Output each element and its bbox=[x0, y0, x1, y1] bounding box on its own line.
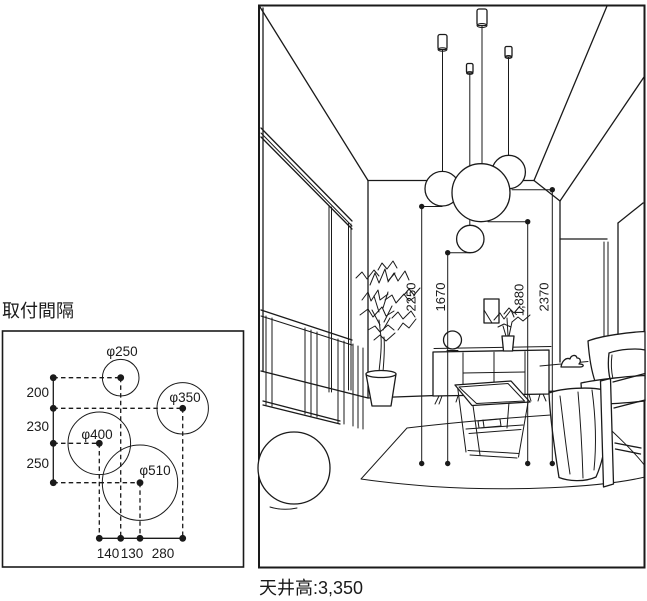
mounting-spacing-diagram: 取付間隔 φ250 bbox=[2, 301, 244, 567]
row-spacing-label-2: 250 bbox=[26, 456, 49, 471]
pendant-sphere-large bbox=[452, 164, 510, 222]
spacing-dots bbox=[50, 374, 186, 541]
row-spacing-label-1: 230 bbox=[26, 419, 49, 434]
spacing-guide-lines bbox=[53, 378, 182, 539]
col-spacing-label-1: 130 bbox=[121, 546, 144, 561]
spacing-title: 取付間隔 bbox=[2, 301, 74, 321]
figure-canvas: 取付間隔 φ250 bbox=[0, 0, 647, 601]
label-phi400: φ400 bbox=[81, 427, 112, 442]
pendant-sphere-small bbox=[457, 225, 484, 252]
col-spacing-label-2: 280 bbox=[152, 546, 175, 561]
wall-picture bbox=[484, 299, 499, 323]
sofa-arm-post bbox=[601, 379, 614, 488]
drop-height-label-0: 2250 bbox=[404, 283, 419, 312]
room-perspective-illustration: 2250 1670 1,880 2370 天井高:3,350 bbox=[258, 6, 645, 599]
label-phi250: φ250 bbox=[106, 344, 137, 359]
drop-height-label-1: 1670 bbox=[433, 283, 448, 312]
sofa-blanket bbox=[549, 388, 606, 481]
label-phi510: φ510 bbox=[139, 463, 170, 478]
drop-height-label-2: 1,880 bbox=[512, 284, 527, 317]
ceiling-height-caption: 天井高:3,350 bbox=[259, 578, 363, 598]
row-spacing-label-0: 200 bbox=[26, 385, 49, 400]
lighting-spec-figure: 取付間隔 φ250 bbox=[0, 0, 647, 601]
label-phi350: φ350 bbox=[169, 390, 200, 405]
plant-pot bbox=[366, 374, 396, 406]
drop-height-label-3: 2370 bbox=[537, 283, 552, 312]
col-spacing-label-0: 140 bbox=[97, 546, 120, 561]
